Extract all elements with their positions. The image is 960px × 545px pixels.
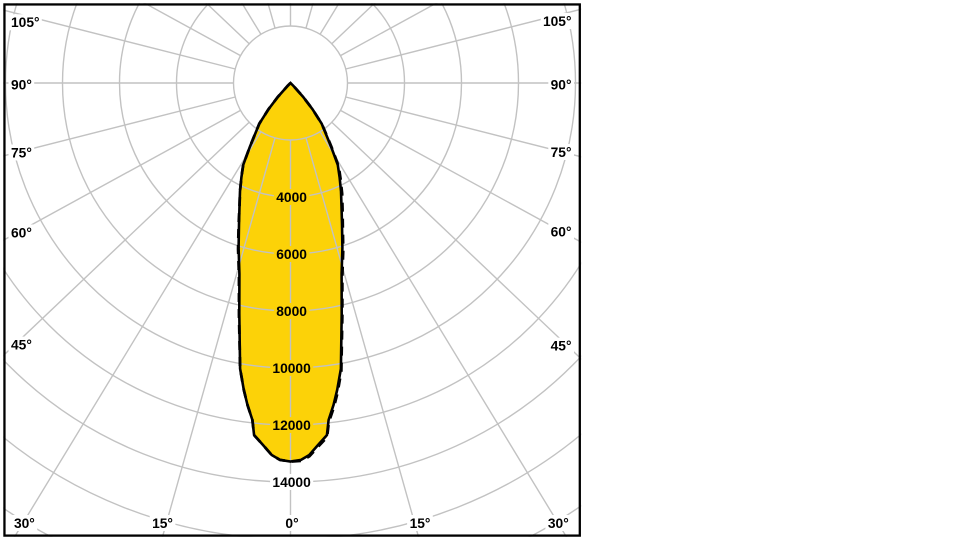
svg-text:15°: 15°: [152, 516, 173, 531]
svg-text:30°: 30°: [14, 516, 35, 531]
svg-text:105°: 105°: [543, 14, 572, 29]
svg-text:8000: 8000: [276, 304, 307, 319]
svg-text:4000: 4000: [276, 190, 307, 205]
svg-text:105°: 105°: [11, 15, 40, 30]
svg-text:10000: 10000: [272, 361, 311, 376]
svg-text:14000: 14000: [272, 475, 311, 490]
svg-text:90°: 90°: [551, 77, 572, 92]
svg-text:75°: 75°: [11, 145, 32, 160]
svg-text:90°: 90°: [11, 77, 32, 92]
svg-text:45°: 45°: [11, 338, 32, 353]
svg-text:6000: 6000: [276, 247, 307, 262]
svg-text:45°: 45°: [551, 339, 572, 354]
svg-text:60°: 60°: [551, 224, 572, 239]
svg-text:30°: 30°: [548, 516, 569, 531]
svg-text:12000: 12000: [272, 418, 311, 433]
svg-text:0°: 0°: [285, 516, 298, 531]
svg-text:60°: 60°: [11, 225, 32, 240]
svg-text:75°: 75°: [551, 145, 572, 160]
svg-text:15°: 15°: [410, 516, 431, 531]
